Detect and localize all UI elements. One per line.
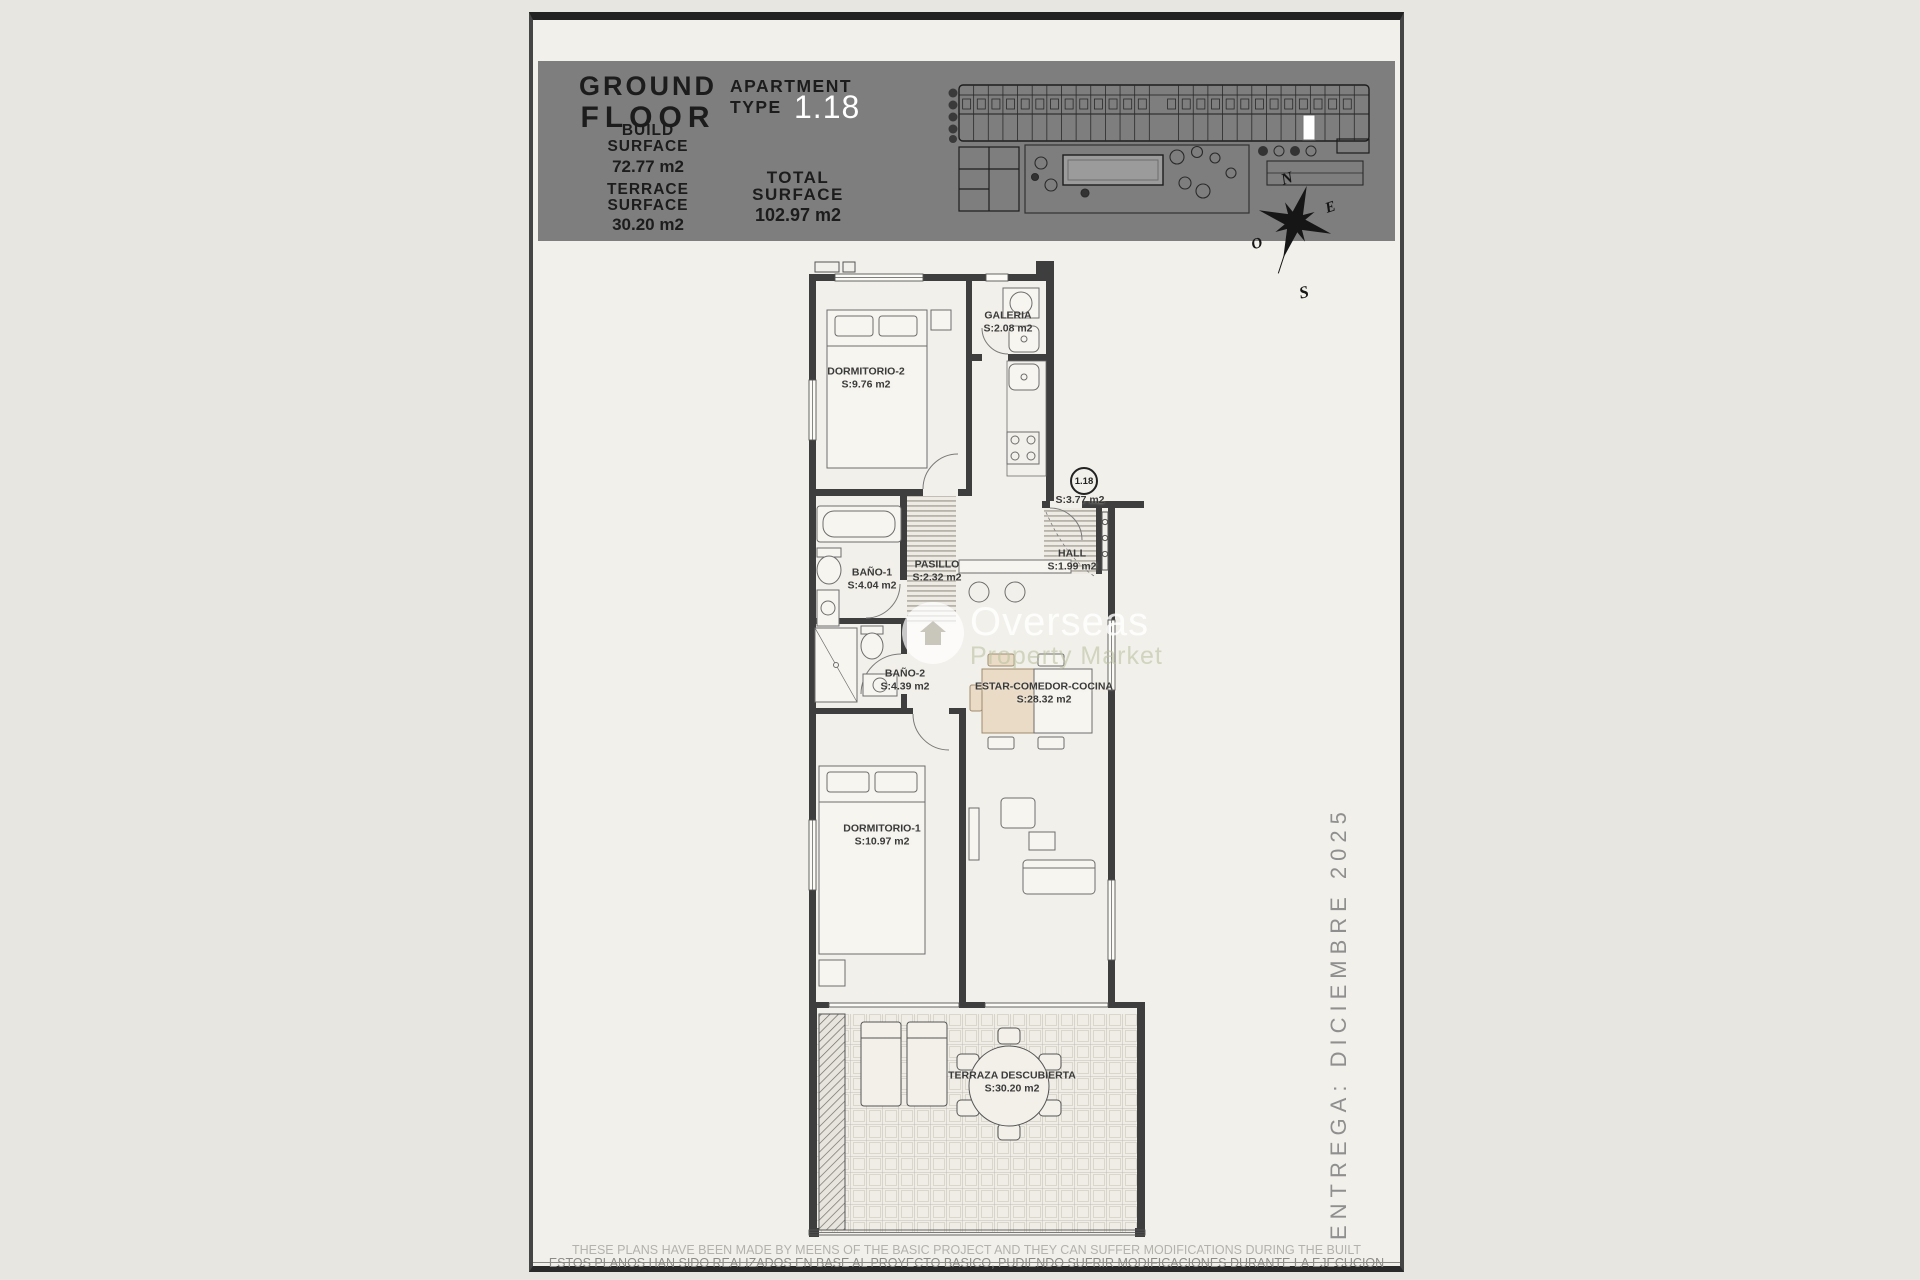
exterior-units	[815, 262, 855, 272]
living-dining-icons	[959, 560, 1095, 894]
apartment-type-label: TYPE	[730, 97, 782, 118]
terrace-surface-label: TERRACE SURFACE	[568, 182, 728, 214]
build-surface-value: 72.77 m2	[568, 157, 728, 177]
room-label-galeria: GALERIAS:2.08 m2	[983, 310, 1032, 335]
compass-rose: N E O S	[1245, 158, 1345, 318]
room-label-estar-comedor-cocina: ESTAR-COMEDOR-COCINAS:28.32 m2	[975, 681, 1113, 706]
site-plan-pool	[1063, 155, 1163, 185]
total-surface-value: 102.97 m2	[728, 205, 868, 226]
room-label-bano-1: BAÑO-1S:4.04 m2	[847, 567, 896, 592]
room-label-pasillo: PASILLOS:2.32 m2	[912, 559, 961, 584]
hall-shelf	[1102, 512, 1108, 570]
apartment-number: 1.18	[794, 89, 860, 126]
total-surface-label: TOTAL SURFACE	[728, 169, 868, 203]
room-label-dormitorio-1: DORMITORIO-1S:10.97 m2	[843, 823, 920, 848]
room-label-hall: HALLS:1.99 m2	[1047, 548, 1096, 573]
floor-plan-drawing	[803, 260, 1153, 1245]
compass-east-label: E	[1322, 198, 1337, 217]
site-plan-units	[963, 85, 1355, 141]
floor-title-line1: GROUND	[558, 71, 738, 102]
room-label-bano-2: BAÑO-2S:4.39 m2	[880, 668, 929, 693]
plan-sheet: GROUND FLOOR APARTMENT TYPE 1.18 BUILD S…	[529, 12, 1404, 1272]
terrace-surface-value: 30.20 m2	[568, 215, 728, 235]
highlighted-unit	[1303, 115, 1315, 140]
bed-1-icon	[819, 766, 925, 986]
disclaimer-line-es: ESTOS PLANOS HAN SIDO REALIZADOS EN BASE…	[533, 1257, 1400, 1270]
compass-west-label: O	[1249, 235, 1264, 254]
exterior-shaft	[1036, 261, 1054, 274]
disclaimer: THESE PLANS HAVE BEEN MADE BY MEENS OF T…	[533, 1244, 1400, 1270]
compass-north-label: N	[1278, 169, 1297, 189]
build-surface-label: BUILD SURFACE	[568, 123, 728, 155]
unit-number-badge: 1.18	[1070, 467, 1098, 495]
delivery-date-note: ENTREGA: DICIEMBRE 2025	[1326, 778, 1362, 1240]
room-label-terraza-descubierta: TERRAZA DESCUBIERTAS:30.20 m2	[948, 1070, 1076, 1095]
terrace-planter	[819, 1014, 845, 1230]
site-plan-trees-left	[949, 89, 958, 144]
entry-area-label: S:3.77 m2	[1055, 494, 1104, 507]
room-label-dormitorio-2: DORMITORIO-2S:9.76 m2	[827, 366, 904, 391]
compass-south-label: S	[1297, 282, 1311, 303]
